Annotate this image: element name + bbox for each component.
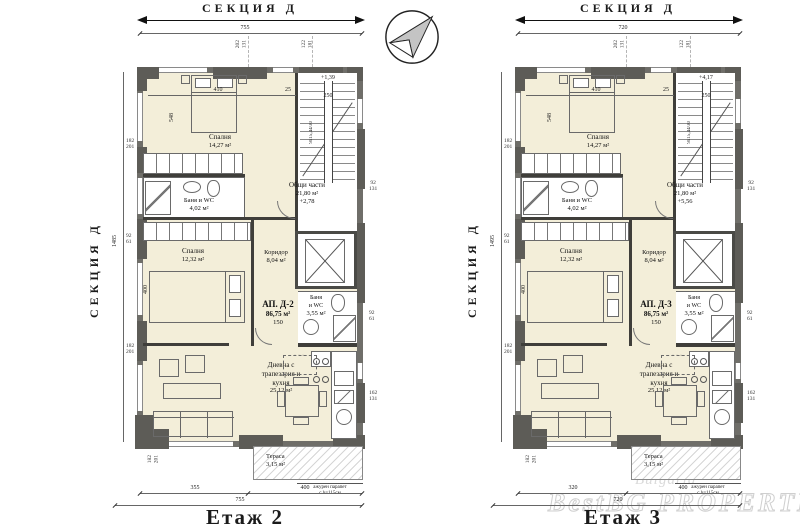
axis-line [690,36,691,67]
room-name: Общи части [275,181,339,190]
sofa-back-line [154,417,234,418]
room-area: 4,02 м² [545,205,609,213]
coffee-table [541,383,599,399]
door-arc [255,328,272,345]
nightstand [616,75,625,84]
room-label-bath2: Баня и WC 3,55 м² [300,295,332,318]
kitchen-appliance [712,371,732,386]
room-label-corridor: Коридор 8,04 м² [255,249,297,265]
dim-pair-right-3: 162131 [369,390,377,403]
dim-room-depth: 548 [169,113,175,122]
chair [293,377,309,385]
dim-line-top [518,33,740,34]
terrace: Тераса 3,15 м² [253,446,363,480]
sofa [153,411,233,437]
window [735,99,741,123]
dim-pair-side-1: 182201 [126,138,134,151]
dim-top-total: 720 [593,25,653,31]
dim-pair-side-3: 182201 [126,343,134,356]
floor-plan-drawing: Bulgaria BestBG PROPERTIES СЕКЦИЯ Д 755 … [0,0,800,528]
sofa-divider [585,412,586,438]
wall-pier [357,223,365,303]
armchair [159,359,179,377]
dim-pair-right-1: 92131 [369,180,377,193]
burner-icon [322,358,329,365]
dim-line-side [123,72,124,442]
room-label-bedroom2: Спалня 12,32 м² [161,247,225,264]
room-name: Спалня [161,247,225,256]
dining-table [663,385,697,417]
kitchen-appliance [334,390,354,404]
dim-pair-top-1: 202131 [235,40,248,48]
wall-pier [357,383,365,423]
stair-elevation: +4,17 [679,75,733,81]
window [137,93,143,141]
dim-side-total: 1485 [112,235,118,247]
pillow [607,275,619,293]
section-label-side: СЕКЦИЯ Д [465,205,480,335]
dim-pair-bottom: 182201 [147,455,160,463]
room-area: 12,32 м² [539,256,603,264]
room-name: Спалня [188,133,252,142]
room-area: 3,55 м² [300,310,332,318]
pillow [607,299,619,317]
dim-side-total: 1495 [490,235,496,247]
dim-pair-bottom: 182201 [525,455,538,463]
room-name-l1: Баня [678,295,710,303]
room-name: Тераса [266,453,316,461]
room-name: Баня и WC [545,197,609,205]
pantry-dashed [283,355,317,375]
stair-elevation: +1,39 [301,75,355,81]
toilet [709,294,723,312]
dim-bottom-total: 720 [588,497,648,503]
chair [671,417,687,425]
window [155,67,207,73]
room-name: Коридор [633,249,675,257]
arrowhead-right-icon [733,16,743,24]
dim-tick [738,31,743,36]
room-label-bath1: Баня и WC 4,02 м² [167,197,231,213]
sink [183,181,201,193]
room-area: 4,02 м² [167,205,231,213]
partition-wall [143,217,298,220]
dim-tick [360,503,365,508]
window [357,363,363,379]
room-area: 12,32 м² [161,256,225,264]
sofa-divider [558,412,559,438]
railing-l2: с h=115см [675,491,741,497]
room-name: Тераса [644,453,694,461]
kitchen-sink [336,409,352,425]
armchair [185,355,205,373]
dim-bottom-1: 320 [538,485,608,491]
arrowhead-right-icon [355,16,365,24]
railing-l2: с h=115см [297,491,363,497]
room-area: 14,27 м² [188,142,252,150]
sofa-divider [180,412,181,438]
elevator-x-icon [306,240,344,282]
chair [319,391,327,407]
dim-bed-gap: 25 [279,87,297,93]
dim-bottom-2: 400 [265,485,345,491]
room-name: Общи части [653,181,717,190]
dim-pair-right-2: 9261 [747,310,753,323]
stair-note: 9x15,44/30 [687,121,692,144]
room-label-bedroom1: Спалня 14,27 м² [566,133,630,150]
room-area: 8,04 м² [633,257,675,265]
elevator-cab [305,239,345,283]
nightstand [238,75,247,84]
room-label-bath2: Баня и WC 3,55 м² [678,295,710,318]
room-area: 21,80 м² [275,190,339,198]
dim-line [526,95,674,96]
shower [333,315,356,342]
wall-pier [515,67,525,91]
plan-outline: +1,39 250 9x15,44/30 Общи части 21,80 м²… [137,67,363,447]
burner-icon [700,358,707,365]
door-arc [633,328,650,345]
dim-top-total: 755 [215,25,275,31]
bed-line [603,271,604,323]
room-area: 14,27 м² [566,142,630,150]
sofa-divider [207,412,208,438]
dim-pair-right-3: 162131 [747,390,755,403]
dim-bed2: 400 [143,285,149,294]
stair-note: 9x15,44/30 [309,121,314,144]
axis-line [312,36,313,67]
elevator-x-icon [684,240,722,282]
dim-tick [360,31,365,36]
terrace: Тераса 3,15 м² [631,446,741,480]
arrowhead-left-icon [137,16,147,24]
section-label-top: СЕКЦИЯ Д [528,1,728,16]
sink [681,319,697,335]
window [357,99,363,123]
wall-pier [357,129,365,189]
window [545,441,611,447]
wardrobe [143,222,251,241]
pillow [229,299,241,317]
chair [655,391,663,407]
floor-plan-panel-floor3: СЕКЦИЯ Д 720 202131 122181 СЕКЦИЯ Д 1495… [463,0,800,528]
wall-pier [515,321,525,361]
dim-pair-side-1: 182201 [504,138,512,151]
partition-wall [295,73,298,231]
dim-line-side [501,72,502,442]
room-label-bedroom1: Спалня 14,27 м² [188,133,252,150]
toilet [207,180,220,197]
wardrobe [143,153,243,174]
section-label-side: СЕКЦИЯ Д [87,205,102,335]
dim-pair-side-2: 9261 [504,233,510,246]
room-area: 21,80 м² [653,190,717,198]
kitchen-appliance [334,371,354,386]
chair [697,391,705,407]
pantry-dashed [661,355,695,375]
nightstand [559,75,568,84]
axis-line [248,36,249,67]
dim-pair-side-2: 9261 [126,233,132,246]
dim-bed2: 400 [521,285,527,294]
stair-width-dim: 250 [681,93,731,99]
dim-tick [738,503,743,508]
burner-icon [322,376,329,383]
room-name-l1: Баня [300,295,332,303]
sink [303,319,319,335]
burner-icon [700,376,707,383]
floor-title: Етаж 2 [145,505,345,528]
stair-width-dim: 250 [303,93,353,99]
dim-room-depth: 548 [547,113,553,122]
shower [711,315,734,342]
dim-bed-width: 410 [576,87,616,93]
partition-wall [676,343,735,347]
dim-pair-top-1: 202131 [613,40,626,48]
room-label-bedroom2: Спалня 12,32 м² [539,247,603,264]
room-name: Спалня [539,247,603,256]
coffee-table [163,383,221,399]
pillow [229,275,241,293]
elevator-shaft [673,231,735,289]
window [273,67,293,73]
chair [293,417,309,425]
floor-title: Етаж 3 [523,505,723,528]
wardrobe [521,153,621,174]
wardrobe [521,222,629,241]
chair [277,391,285,407]
window [651,67,671,73]
chair [671,377,687,385]
partition-wall [298,343,357,347]
window [735,363,741,379]
partition-wall [673,73,676,231]
dim-bed-gap: 25 [657,87,675,93]
room-area: 3,15 м² [266,461,316,469]
elevator-cab [683,239,723,283]
room-name: Баня и WC [167,197,231,205]
bed-line [225,271,226,323]
room-area: 8,04 м² [255,257,297,265]
room-name: Коридор [255,249,297,257]
armchair [537,359,557,377]
dim-pair-right-2: 9261 [369,310,375,323]
room-name-l2: и WC [678,303,710,311]
dim-line [148,95,296,96]
window [515,93,521,141]
armchair [563,355,583,373]
dim-bottom-total: 755 [210,497,270,503]
room-area: 3,15 м² [644,461,694,469]
dining-table [285,385,319,417]
partition-wall [521,217,676,220]
room-name-l2: и WC [300,303,332,311]
room-label-terrace: Тераса 3,15 м² [266,453,316,469]
nightstand [181,75,190,84]
wall-pier [137,67,147,91]
floor-plan-panel-floor2: СЕКЦИЯ Д 755 202131 122181 СЕКЦИЯ Д 1485… [85,0,425,528]
kitchen-sink [714,409,730,425]
room-area: 3,55 м² [678,310,710,318]
partition-wall [143,343,229,346]
window [515,365,521,411]
sink [561,181,579,193]
window [137,365,143,411]
room-name: Спалня [566,133,630,142]
window [167,441,233,447]
dim-bottom-2: 400 [643,485,723,491]
dim-pair-side-3: 182201 [504,343,512,356]
wall-pier [137,321,147,361]
section-label-top: СЕКЦИЯ Д [150,1,350,16]
dim-line-top [140,33,362,34]
dim-pair-right-1: 92131 [747,180,755,193]
toilet [585,180,598,197]
dim-line-bottom [140,493,362,494]
partition-wall [521,343,607,346]
room-label-bath1: Баня и WC 4,02 м² [545,197,609,213]
dim-bed-width: 410 [198,87,238,93]
section-arrow-line [145,20,357,21]
window [533,67,585,73]
axis-line [626,36,627,67]
toilet [331,294,345,312]
dim-line-bottom [518,493,740,494]
elevator-shaft [295,231,357,289]
dim-bottom-1: 355 [160,485,230,491]
section-arrow-line [523,20,735,21]
kitchen-appliance [712,390,732,404]
wall-pier [735,383,743,423]
room-label-terrace: Тераса 3,15 м² [644,453,694,469]
arrowhead-left-icon [515,16,525,24]
wall-pier [735,129,743,189]
sofa-back-line [532,417,612,418]
sofa [531,411,611,437]
plan-outline: +4,17 250 9x15,44/30 Общи части 21,80 м²… [515,67,741,447]
room-label-corridor: Коридор 8,04 м² [633,249,675,265]
wall-pier [735,223,743,303]
